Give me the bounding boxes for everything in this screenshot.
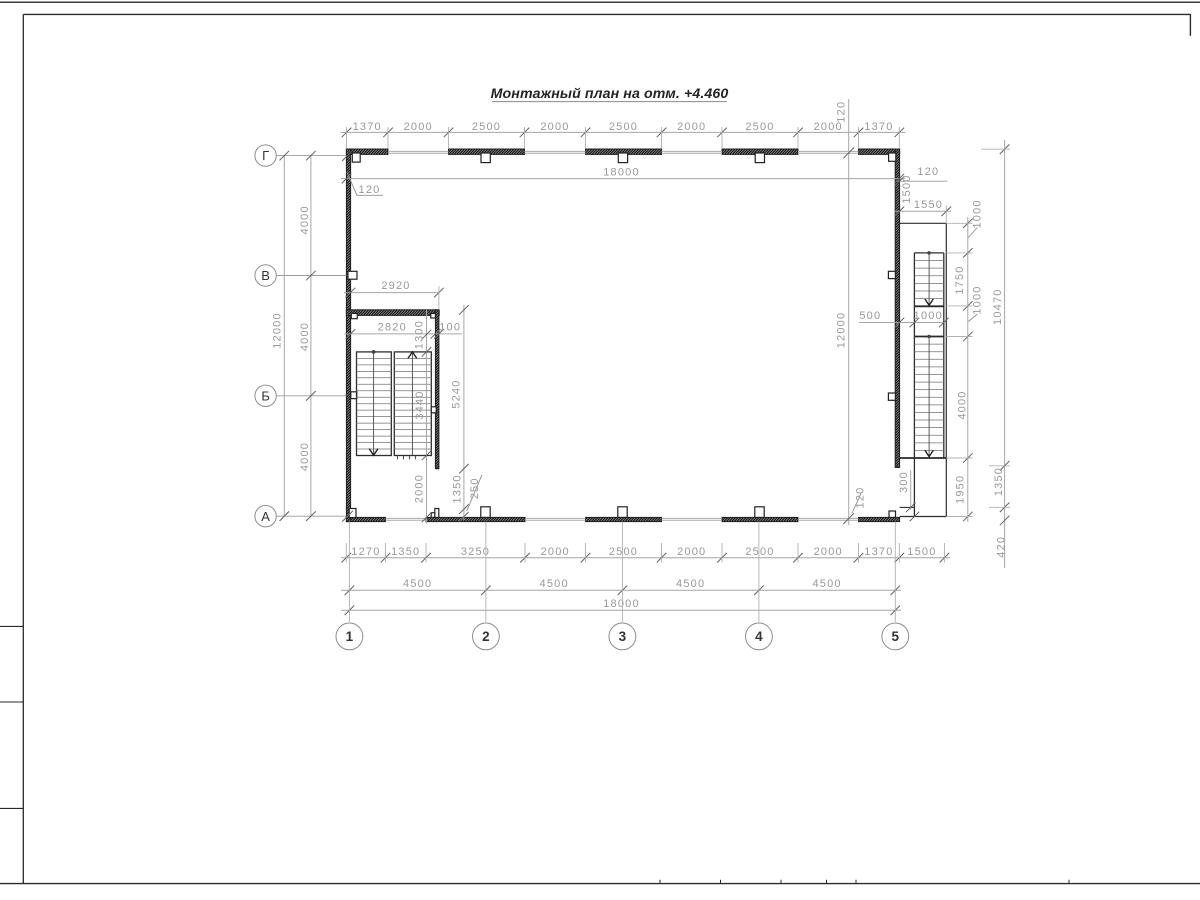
svg-text:1500: 1500: [907, 546, 936, 558]
svg-text:420: 420: [996, 536, 1008, 558]
svg-text:120: 120: [855, 487, 867, 509]
svg-text:4500: 4500: [540, 578, 569, 590]
svg-text:18000: 18000: [603, 166, 640, 178]
svg-text:1: 1: [346, 629, 354, 644]
svg-text:2000: 2000: [677, 546, 706, 558]
svg-text:300: 300: [898, 471, 910, 493]
svg-text:1000: 1000: [971, 199, 983, 228]
svg-text:1550: 1550: [914, 199, 943, 211]
svg-text:2000: 2000: [413, 474, 425, 503]
svg-text:100: 100: [439, 322, 461, 334]
svg-text:1350: 1350: [451, 474, 463, 503]
svg-text:18000: 18000: [603, 598, 640, 610]
svg-text:1350: 1350: [391, 546, 420, 558]
svg-text:2500: 2500: [745, 546, 774, 558]
svg-text:2: 2: [482, 629, 490, 644]
svg-text:2820: 2820: [378, 322, 407, 334]
svg-text:В: В: [261, 268, 270, 283]
svg-text:4500: 4500: [676, 578, 705, 590]
svg-text:2500: 2500: [472, 121, 501, 133]
svg-text:4500: 4500: [403, 578, 432, 590]
svg-text:12000: 12000: [272, 312, 284, 349]
svg-text:5240: 5240: [451, 379, 463, 408]
svg-text:2920: 2920: [381, 280, 410, 292]
svg-text:5: 5: [892, 629, 900, 644]
svg-text:1750: 1750: [954, 265, 966, 294]
svg-text:2000: 2000: [540, 121, 569, 133]
svg-text:3440: 3440: [414, 390, 426, 419]
svg-text:1370: 1370: [353, 121, 382, 133]
svg-text:1350: 1350: [993, 467, 1005, 496]
svg-text:4000: 4000: [956, 390, 968, 419]
svg-text:2000: 2000: [404, 121, 433, 133]
svg-text:А: А: [261, 509, 270, 524]
svg-text:1300: 1300: [414, 320, 426, 349]
svg-text:4: 4: [755, 629, 763, 644]
svg-text:10470: 10470: [992, 288, 1004, 325]
svg-text:3: 3: [619, 629, 627, 644]
svg-text:12000: 12000: [836, 312, 848, 349]
svg-text:1370: 1370: [864, 121, 893, 133]
svg-text:Монтажный план на отм. +4.460: Монтажный план на отм. +4.460: [491, 86, 729, 102]
svg-text:1950: 1950: [954, 475, 966, 504]
svg-text:500: 500: [859, 310, 881, 322]
svg-text:1370: 1370: [864, 546, 893, 558]
svg-text:Г: Г: [262, 148, 269, 163]
svg-text:2500: 2500: [609, 546, 638, 558]
svg-text:4500: 4500: [812, 578, 841, 590]
svg-text:1500: 1500: [901, 174, 913, 203]
svg-text:2000: 2000: [677, 121, 706, 133]
svg-text:120: 120: [917, 166, 939, 178]
svg-text:4000: 4000: [299, 205, 311, 234]
svg-text:4000: 4000: [299, 322, 311, 351]
svg-text:1000: 1000: [971, 285, 983, 314]
svg-text:120: 120: [836, 101, 848, 123]
svg-text:2000: 2000: [814, 546, 843, 558]
svg-text:1000: 1000: [914, 310, 943, 322]
svg-text:1270: 1270: [351, 546, 380, 558]
svg-text:120: 120: [359, 184, 381, 196]
svg-text:2500: 2500: [609, 121, 638, 133]
svg-text:2000: 2000: [541, 546, 570, 558]
svg-text:2500: 2500: [745, 121, 774, 133]
svg-text:Б: Б: [261, 388, 270, 403]
svg-text:4000: 4000: [299, 442, 311, 471]
